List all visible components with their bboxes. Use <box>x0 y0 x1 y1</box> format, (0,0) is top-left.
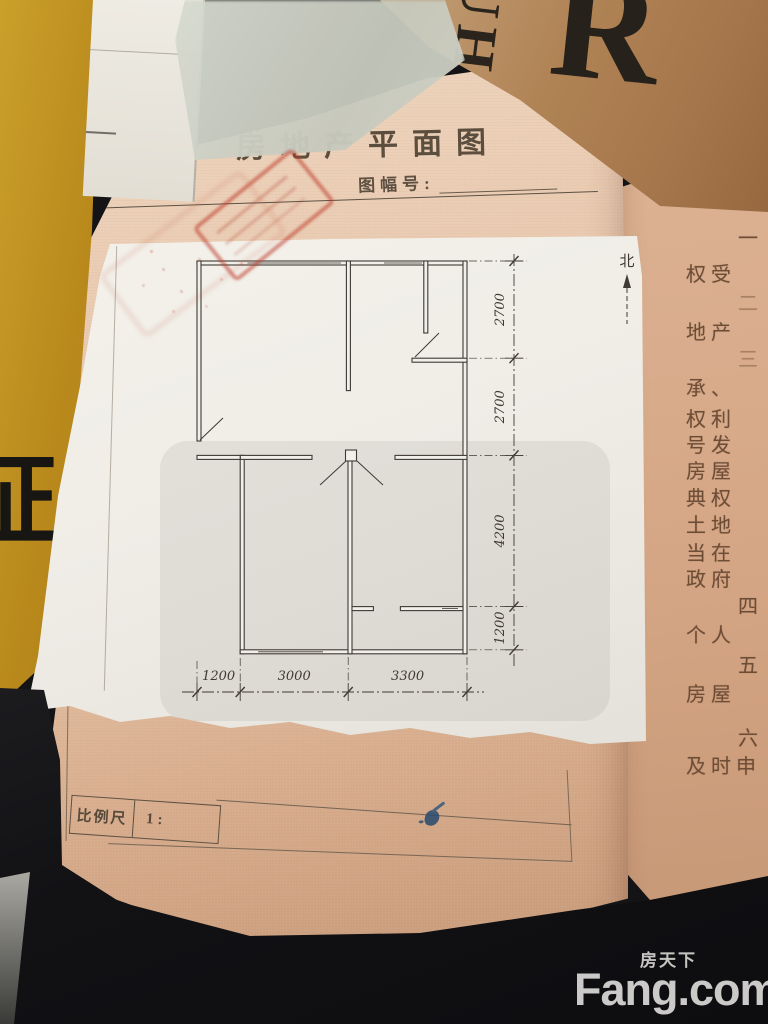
ink-blot <box>423 808 441 827</box>
dim-label-right-3: 4200 <box>493 514 508 548</box>
wall-center-upper <box>346 261 350 391</box>
wall-bath-left <box>352 607 373 611</box>
clause-line: 当在 <box>686 537 736 566</box>
certificate-glyph: 证 <box>0 452 58 552</box>
clause-line: 地产 <box>686 316 736 345</box>
wall-topright-bottom <box>412 358 467 362</box>
watermark-logo: Fang.com <box>574 967 768 1012</box>
door-pillar <box>346 450 357 461</box>
wall-mid-right <box>395 455 467 459</box>
sheet-number-row: 图幅号: <box>358 165 557 197</box>
door-topright-leaf <box>415 333 439 357</box>
wall-left-lower <box>240 455 244 653</box>
form-right-border <box>567 770 573 862</box>
wall-topright-vert <box>424 261 428 333</box>
wall-step-connector <box>197 455 240 459</box>
cover-letter-r: R <box>544 0 667 109</box>
dim-label-bottom-2: 3000 <box>278 669 311 684</box>
strip-mark <box>86 131 116 135</box>
floor-plan-paper: 2700 2700 4200 1200 1200 3000 3300 <box>30 236 646 752</box>
dim-label-bottom-3: 3300 <box>391 669 424 684</box>
fang-watermark: 房天下 Fang.com <box>574 946 766 1012</box>
door-entrance-leaf <box>200 418 223 440</box>
clause-line: 二 <box>738 287 763 316</box>
scale-box: 比例尺 1: <box>69 795 221 844</box>
clause-line: 六 <box>738 722 763 751</box>
clause-line: 四 <box>738 590 763 619</box>
dim-label-right-4: 1200 <box>493 611 508 644</box>
clause-line: 三 <box>738 343 763 372</box>
scale-label: 比例尺 <box>70 796 135 837</box>
clause-line: 承、 <box>686 372 736 401</box>
wall-mid-left <box>240 455 312 459</box>
form-rule-lower <box>108 843 572 862</box>
dim-label-right-1: 2700 <box>493 293 508 327</box>
clause-line: 权利 <box>686 403 736 432</box>
clause-line: 号发 <box>686 429 736 458</box>
clause-line: 及时申 <box>686 750 761 779</box>
form-rule-upper <box>216 800 571 826</box>
scale-value: 1: <box>133 800 220 843</box>
clause-line: 五 <box>738 649 763 678</box>
clause-line: 典权 <box>686 482 736 511</box>
clause-line: 个人 <box>686 619 736 648</box>
north-indicator: 北 <box>619 253 634 324</box>
sheet-number-label: 图幅号: <box>358 174 435 196</box>
red-stamp-speckles <box>150 250 153 253</box>
dim-label-right-2: 2700 <box>493 390 508 424</box>
clause-line: 土地 <box>686 509 736 538</box>
wall-center-lower <box>348 455 352 653</box>
clause-line: 房屋 <box>686 455 736 484</box>
north-label: 北 <box>619 253 634 270</box>
clause-line: 房屋 <box>686 678 736 707</box>
clause-line: 一 <box>738 222 763 251</box>
door-double-leaf-right <box>357 461 383 485</box>
north-arrow-icon <box>623 274 631 288</box>
clause-line: 政府 <box>686 563 736 592</box>
door-double-leaf-left <box>320 461 346 485</box>
dim-label-bottom-1: 1200 <box>202 669 235 684</box>
sheet-number-blank <box>439 173 558 194</box>
clause-line: 权受 <box>686 258 736 287</box>
